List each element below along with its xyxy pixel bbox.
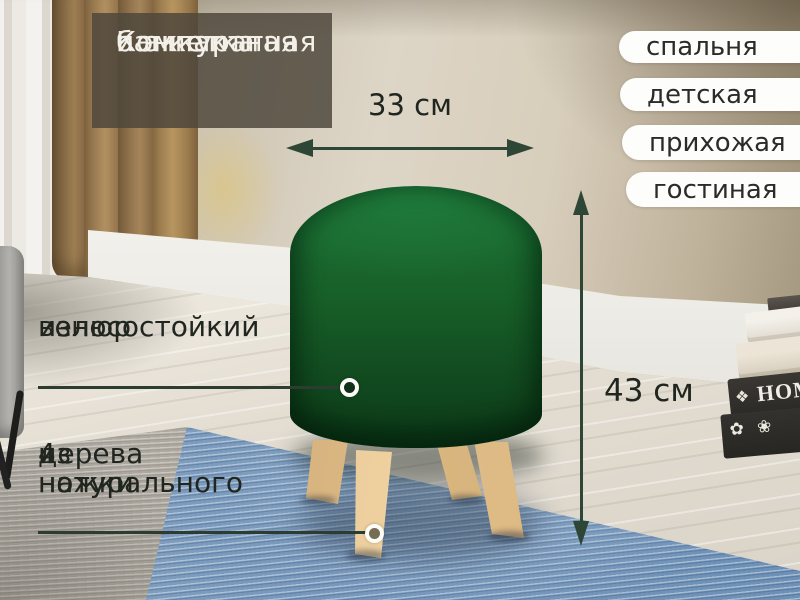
tag-living-room: гостиная [626,172,800,207]
leg-shadow [346,550,386,561]
tag-hallway: прихожая [622,125,800,160]
tag-bedroom: спальня [619,31,800,63]
tag-label: прихожая [649,128,786,158]
arrow-shaft [304,147,516,150]
book-ornament-icon: ❖ [732,383,753,411]
height-arrow-icon [573,190,591,546]
width-dimension-label: 33 см [286,88,534,122]
book-floral: ✿ ❀ [720,405,800,458]
leg-shadow [488,531,530,542]
pouf-body [290,186,542,448]
tag-kids-room: детская [620,78,800,111]
arrowhead-down-icon [573,521,589,546]
arrow-shaft [580,200,583,536]
tag-label: спальня [646,32,758,62]
feature-line: дерева [38,439,143,468]
width-arrow-icon [286,139,534,159]
tag-label: детская [647,80,758,110]
flower-pattern-icon: ✿ ❀ [729,416,776,440]
book-spine-text: HOME [756,374,800,408]
feature-line: велюр [38,312,131,342]
product-infographic: ❖ HOME ✿ ❀ Компактная и аккуратная банке… [0,0,800,600]
legs-callout-dot-icon [365,524,384,543]
velour-leader-line [38,386,341,389]
leg-shadow [300,496,336,505]
book-stack: ❖ HOME ✿ ❀ [722,296,800,464]
tag-label: гостиная [653,175,777,205]
legs-leader-line [38,531,366,534]
velour-callout-dot-icon [340,378,359,397]
title-line: банкетка [116,27,255,57]
height-dimension-label: 43 см [604,373,694,409]
arrowhead-right-icon [507,139,534,157]
leg-shadow [448,495,484,504]
